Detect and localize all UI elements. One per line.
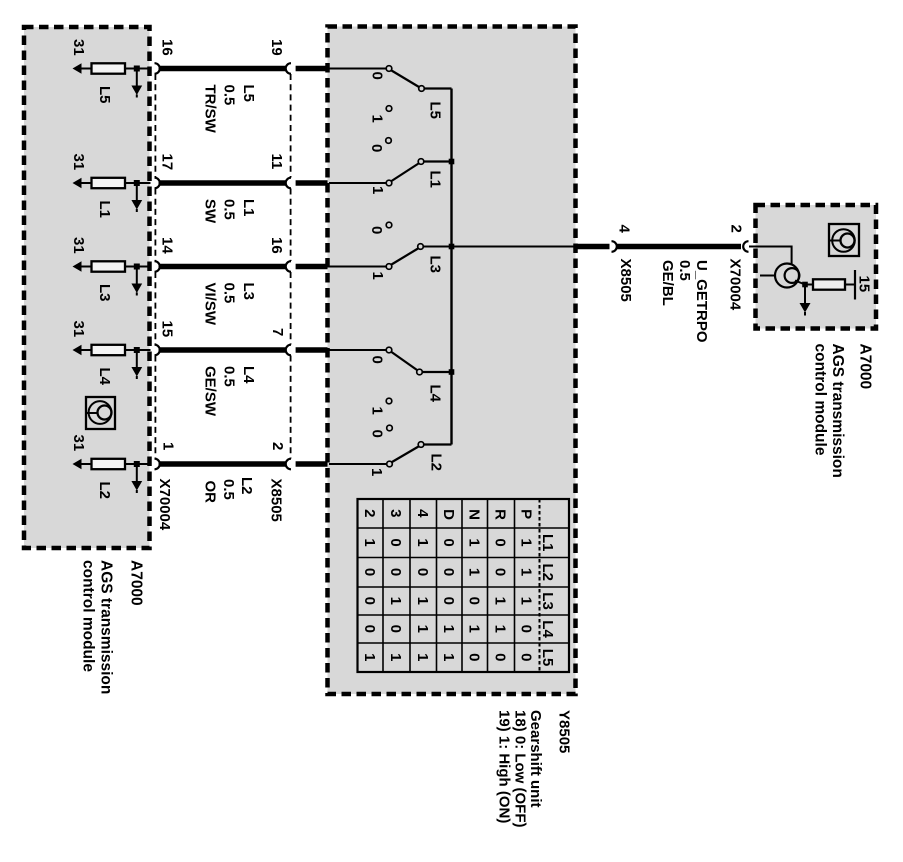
svg-text:L1: L1 (427, 171, 444, 189)
svg-text:0.5: 0.5 (220, 479, 237, 500)
svg-text:L3: L3 (240, 283, 257, 301)
svg-text:1: 1 (465, 625, 482, 633)
svg-text:0: 0 (440, 538, 457, 546)
svg-text:0: 0 (492, 653, 509, 661)
svg-text:1: 1 (361, 538, 378, 546)
svg-text:7: 7 (269, 328, 286, 336)
svg-text:0: 0 (369, 430, 386, 438)
svg-text:L3: L3 (427, 256, 444, 274)
svg-text:L2: L2 (238, 477, 255, 495)
svg-text:L4: L4 (96, 368, 113, 386)
svg-text:0: 0 (492, 538, 509, 546)
svg-text:TR/SW: TR/SW (202, 85, 219, 134)
svg-text:16: 16 (159, 39, 176, 56)
svg-text:L2: L2 (539, 564, 556, 582)
svg-text:0.5: 0.5 (221, 85, 238, 106)
svg-text:0: 0 (414, 568, 431, 576)
svg-text:0.5: 0.5 (221, 283, 238, 304)
svg-text:1: 1 (414, 538, 431, 546)
svg-text:1: 1 (518, 568, 535, 576)
svg-text:1: 1 (369, 407, 386, 415)
svg-text:0: 0 (440, 568, 457, 576)
svg-text:L3: L3 (96, 284, 113, 302)
svg-text:0: 0 (361, 597, 378, 605)
svg-text:SW: SW (202, 199, 219, 224)
svg-text:0: 0 (465, 653, 482, 661)
svg-text:L2: L2 (96, 482, 113, 500)
svg-text:L5: L5 (96, 86, 113, 104)
svg-text:GE/SW: GE/SW (202, 366, 219, 417)
svg-text:0: 0 (492, 568, 509, 576)
svg-text:2: 2 (269, 442, 286, 450)
svg-text:P: P (518, 509, 535, 519)
svg-text:VI/SW: VI/SW (202, 283, 219, 326)
svg-text:A7000: A7000 (857, 344, 874, 390)
svg-text:0.5: 0.5 (221, 366, 238, 387)
svg-text:0: 0 (369, 72, 386, 80)
svg-text:L1: L1 (240, 199, 257, 217)
svg-text:0: 0 (518, 653, 535, 661)
svg-text:1: 1 (492, 625, 509, 633)
svg-text:14: 14 (159, 237, 176, 254)
svg-text:0: 0 (368, 226, 385, 234)
svg-text:L4: L4 (427, 385, 444, 403)
svg-text:control module: control module (812, 344, 829, 456)
svg-text:1: 1 (414, 625, 431, 633)
svg-text:4: 4 (616, 225, 633, 234)
svg-text:18) 0: Low (OFF): 18) 0: Low (OFF) (512, 710, 529, 828)
svg-text:0: 0 (361, 625, 378, 633)
svg-text:1: 1 (518, 597, 535, 605)
svg-text:L2: L2 (428, 454, 445, 472)
svg-text:0.5: 0.5 (221, 199, 238, 220)
svg-text:2: 2 (728, 225, 745, 233)
svg-text:0: 0 (361, 568, 378, 576)
svg-text:L1: L1 (96, 201, 113, 219)
svg-text:1: 1 (465, 568, 482, 576)
svg-text:0: 0 (465, 597, 482, 605)
svg-text:1: 1 (492, 597, 509, 605)
svg-text:L5: L5 (427, 102, 444, 120)
svg-text:L3: L3 (539, 592, 556, 610)
svg-text:X70004: X70004 (727, 259, 744, 311)
svg-text:GE/BL: GE/BL (659, 260, 676, 306)
svg-text:11: 11 (268, 154, 285, 170)
svg-text:L4: L4 (240, 366, 257, 384)
svg-text:31: 31 (70, 39, 87, 56)
svg-text:D: D (440, 509, 457, 520)
svg-text:0: 0 (387, 538, 404, 546)
svg-text:Gearshift unit: Gearshift unit (527, 710, 544, 808)
svg-text:2: 2 (361, 509, 378, 517)
svg-text:31: 31 (70, 154, 87, 171)
svg-text:3: 3 (387, 509, 404, 517)
svg-text:19) 1: High (ON): 19) 1: High (ON) (496, 710, 513, 823)
svg-text:1: 1 (361, 653, 378, 661)
svg-text:1: 1 (518, 538, 535, 546)
svg-text:L5: L5 (539, 649, 556, 667)
svg-text:0: 0 (369, 356, 386, 364)
svg-text:L5: L5 (240, 85, 257, 103)
svg-text:X8505: X8505 (617, 259, 634, 302)
svg-text:31: 31 (70, 237, 87, 254)
svg-text:15: 15 (159, 321, 176, 338)
svg-text:0: 0 (440, 597, 457, 605)
svg-text:17: 17 (159, 154, 176, 171)
svg-text:1: 1 (369, 186, 386, 194)
svg-text:1: 1 (387, 653, 404, 661)
svg-text:Y8505: Y8505 (556, 710, 573, 753)
svg-text:1: 1 (369, 115, 386, 123)
svg-text:0: 0 (368, 144, 385, 152)
svg-text:15: 15 (856, 276, 873, 293)
svg-text:1: 1 (368, 468, 385, 476)
svg-text:31: 31 (70, 435, 87, 452)
svg-text:1: 1 (440, 625, 457, 633)
svg-text:1: 1 (465, 538, 482, 546)
svg-text:4: 4 (414, 509, 431, 518)
svg-text:R: R (492, 509, 509, 520)
svg-text:31: 31 (70, 321, 87, 338)
svg-text:1: 1 (369, 272, 386, 280)
svg-text:1: 1 (414, 597, 431, 605)
svg-text:AGS transmission: AGS transmission (98, 560, 115, 694)
svg-text:1: 1 (440, 653, 457, 661)
svg-text:1: 1 (160, 442, 177, 450)
svg-text:L4: L4 (539, 620, 556, 638)
svg-text:0: 0 (518, 625, 535, 633)
svg-text:A7000: A7000 (128, 560, 145, 606)
svg-text:16: 16 (268, 237, 285, 254)
svg-text:19: 19 (268, 39, 285, 56)
svg-text:1: 1 (387, 597, 404, 605)
svg-text:OR: OR (202, 481, 219, 504)
svg-text:control module: control module (80, 560, 97, 672)
svg-text:U_GETRPO: U_GETRPO (693, 260, 710, 343)
svg-text:X70004: X70004 (156, 479, 173, 531)
svg-text:X8505: X8505 (268, 479, 285, 522)
svg-text:1: 1 (414, 653, 431, 661)
svg-text:N: N (465, 509, 482, 520)
svg-text:AGS transmission: AGS transmission (829, 344, 846, 478)
svg-text:L1: L1 (539, 534, 556, 552)
svg-text:0: 0 (387, 568, 404, 576)
svg-text:0: 0 (387, 625, 404, 633)
svg-text:0.5: 0.5 (676, 260, 693, 281)
